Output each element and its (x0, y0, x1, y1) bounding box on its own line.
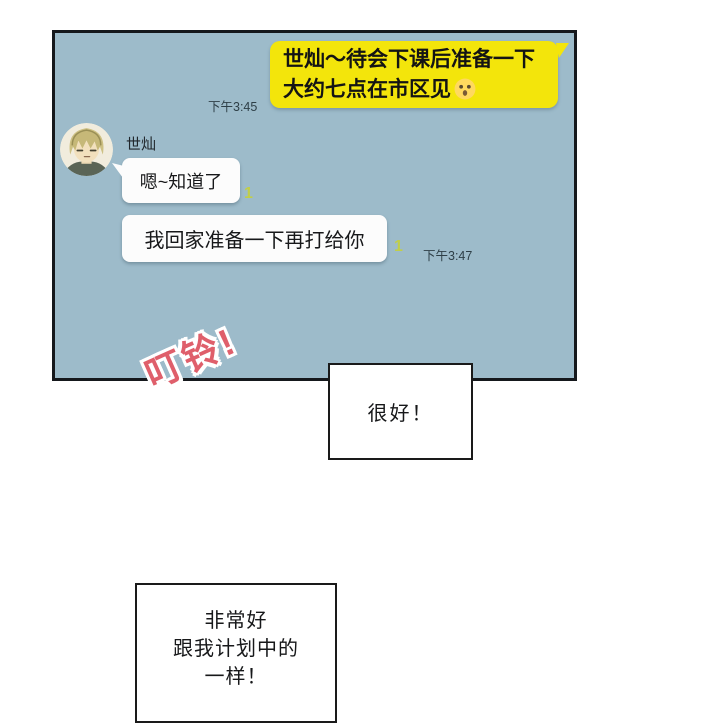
received-bubble-tail (112, 163, 123, 178)
comic-page: { "comic": { "chat_panel": { "sent_messa… (0, 0, 720, 700)
speech-box-reaction-text: 很好！ (368, 397, 434, 426)
speech-box-final-line2: 跟我计划中的 (137, 635, 335, 663)
speech-box-reaction: 很好！ (328, 363, 473, 460)
unread-badge-2: 1 (394, 238, 403, 256)
sent-message-line1: 世灿～待会下课后准备一下 (283, 45, 545, 75)
surprised-emoji-icon (454, 78, 476, 100)
received-message-bubble-1: 嗯~知道了 (122, 158, 240, 203)
unread-badge-1: 1 (244, 185, 253, 203)
speech-box-final-line1: 非常好 (137, 607, 335, 635)
received-message-1-text: 嗯~知道了 (140, 168, 223, 194)
avatar-image (60, 123, 113, 176)
sent-message-bubble: 世灿～待会下课后准备一下 大约七点在市区见 (270, 41, 558, 108)
contact-name: 世灿 (126, 133, 156, 154)
sent-timestamp: 下午3:45 (208, 96, 257, 115)
received-timestamp: 下午3:47 (423, 245, 472, 264)
speech-box-final: 非常好 跟我计划中的 一样！ (135, 583, 337, 723)
sent-message-line2-row: 大约七点在市区见 (283, 75, 545, 105)
received-message-bubble-2: 我回家准备一下再打给你 (122, 215, 387, 262)
chat-panel: 世灿～待会下课后准备一下 大约七点在市区见 下午3:45 世灿 (52, 30, 577, 381)
sent-message-line2: 大约七点在市区见 (283, 78, 451, 101)
received-message-2-text: 我回家准备一下再打给你 (145, 224, 365, 253)
speech-box-final-line3: 一样！ (137, 663, 335, 691)
avatar[interactable] (60, 123, 113, 176)
sent-bubble-tail (556, 43, 569, 58)
